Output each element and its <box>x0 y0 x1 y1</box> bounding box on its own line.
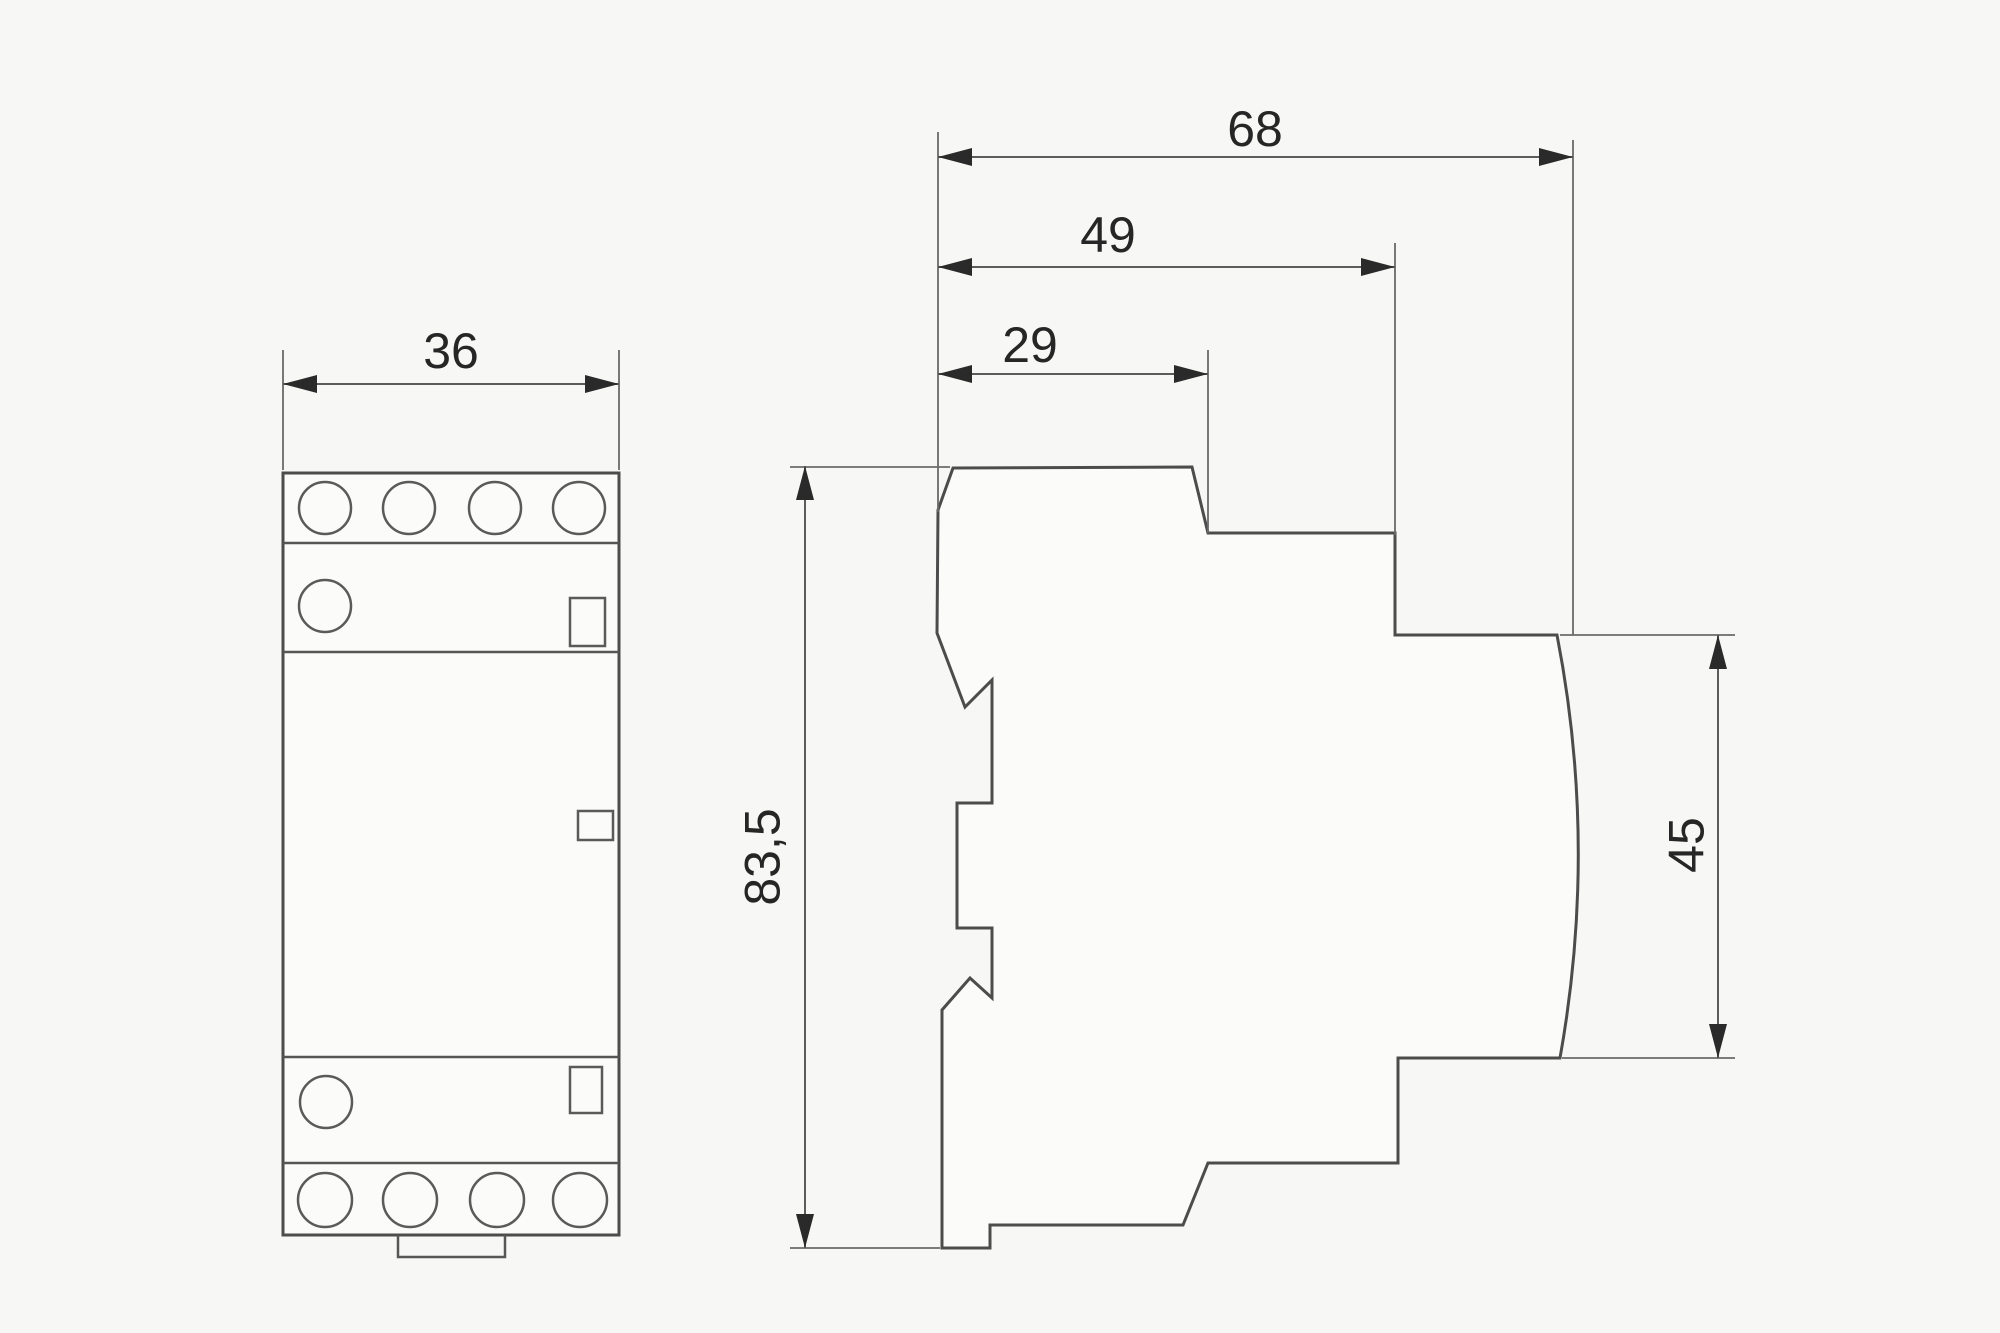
arrowhead-up-icon <box>796 466 814 500</box>
terminal-circle <box>553 1173 607 1227</box>
terminal-circle <box>553 482 605 534</box>
arrowhead-right-icon <box>1174 365 1208 383</box>
arrowhead-left-icon <box>938 258 972 276</box>
technical-drawing-canvas: 36 68 49 29 <box>0 0 2000 1333</box>
indicator-circle <box>300 1076 352 1128</box>
dimension-label: 68 <box>1227 101 1283 157</box>
front-view <box>283 473 619 1257</box>
arrowhead-left-icon <box>938 365 972 383</box>
side-view <box>937 467 1578 1248</box>
arrowhead-down-icon <box>796 1214 814 1248</box>
arrowhead-up-icon <box>1709 635 1727 669</box>
indicator-square <box>570 598 605 646</box>
terminal-circle <box>469 482 521 534</box>
arrowhead-left-icon <box>938 148 972 166</box>
dimension-overall-height: 83,5 <box>735 466 951 1248</box>
arrowhead-left-icon <box>283 375 317 393</box>
arrowhead-right-icon <box>1361 258 1395 276</box>
terminal-circle <box>470 1173 524 1227</box>
dimension-label: 83,5 <box>735 808 791 905</box>
indicator-square <box>570 1067 602 1113</box>
dimension-label: 49 <box>1080 207 1136 263</box>
indicator-circle <box>299 580 351 632</box>
terminal-circle <box>299 482 351 534</box>
arrowhead-right-icon <box>585 375 619 393</box>
dimension-front-width: 36 <box>283 323 619 470</box>
dimension-front-height: 45 <box>1560 635 1735 1058</box>
terminal-circle <box>298 1173 352 1227</box>
marker-square <box>578 811 613 840</box>
arrowhead-right-icon <box>1539 148 1573 166</box>
dimension-label: 29 <box>1002 317 1058 373</box>
terminal-circle <box>383 482 435 534</box>
dimension-label: 45 <box>1659 817 1715 873</box>
mounting-tab <box>398 1235 505 1257</box>
dimension-label: 36 <box>423 323 479 379</box>
side-view-profile <box>937 467 1578 1248</box>
arrowhead-down-icon <box>1709 1024 1727 1058</box>
contactor-dimension-drawing: 36 68 49 29 <box>0 0 2000 1333</box>
terminal-circle <box>383 1173 437 1227</box>
